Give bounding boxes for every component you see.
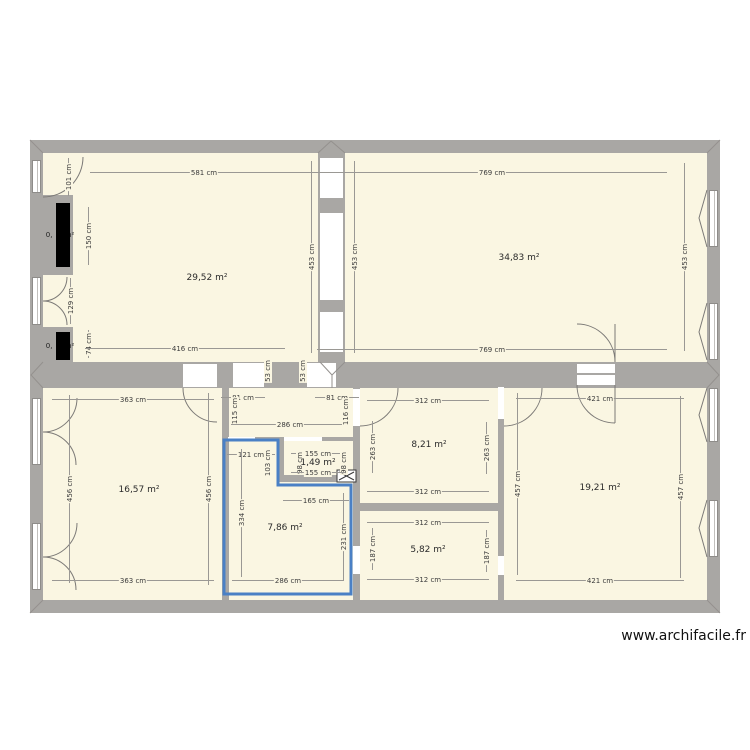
dimension-label: 263 cm bbox=[369, 433, 377, 461]
dimension-label: 416 cm bbox=[171, 345, 199, 353]
dimension-label: 312 cm bbox=[414, 576, 442, 584]
room-area-label[interactable]: 5,82 m² bbox=[410, 545, 445, 555]
dimension: 150 cm bbox=[88, 207, 89, 265]
room-area-label[interactable]: 1,49 m² bbox=[300, 458, 335, 468]
floor-plan-canvas: 581 cm101 cm150 cm129 cm74 cm416 cm453 c… bbox=[0, 0, 750, 750]
dimension: 231 cm bbox=[343, 493, 344, 581]
dimension-label: 155 cm bbox=[304, 469, 332, 477]
dimension: 457 cm bbox=[680, 396, 681, 578]
dimension: 453 cm bbox=[354, 161, 355, 353]
dimension: 187 cm bbox=[372, 528, 373, 570]
dimension-label: 187 cm bbox=[483, 537, 491, 565]
dimension: 421 cm bbox=[516, 580, 684, 581]
dimension-label: 129 cm bbox=[67, 287, 75, 315]
dimension-label: 457 cm bbox=[677, 473, 685, 501]
room-area-label[interactable]: 34,83 m² bbox=[498, 253, 539, 263]
dimension: 187 cm bbox=[486, 530, 487, 572]
dimension-label: 101 cm bbox=[65, 163, 73, 191]
dimension: 53 cm bbox=[302, 361, 303, 381]
conduit-box bbox=[56, 203, 70, 267]
room-area-label[interactable]: 19,21 m² bbox=[579, 483, 620, 493]
dimension: 101 cm bbox=[68, 158, 69, 196]
dimension: 363 cm bbox=[52, 399, 214, 400]
dimension: 165 cm bbox=[283, 500, 349, 501]
dimension: 74 cm bbox=[88, 330, 89, 358]
dimension-label: 53 cm bbox=[264, 359, 272, 383]
dimension: 769 cm bbox=[317, 172, 667, 173]
dimension-label: 453 cm bbox=[681, 243, 689, 271]
dimension-label: 453 cm bbox=[308, 243, 316, 271]
dimension: 263 cm bbox=[372, 421, 373, 473]
dimension: 81 cm bbox=[315, 397, 359, 398]
dimension: 363 cm bbox=[52, 580, 214, 581]
dimension-label: 581 cm bbox=[190, 169, 218, 177]
dimension-label: 286 cm bbox=[274, 577, 302, 585]
dimension-label: 769 cm bbox=[478, 346, 506, 354]
dimension: 416 cm bbox=[85, 348, 285, 349]
dimension-label: 312 cm bbox=[414, 519, 442, 527]
room-area-label[interactable]: 16,57 m² bbox=[118, 485, 159, 495]
dimension-label: 456 cm bbox=[66, 475, 74, 503]
dimension-label: 453 cm bbox=[351, 243, 359, 271]
dimension: 334 cm bbox=[241, 449, 242, 577]
dimension-label: 150 cm bbox=[85, 222, 93, 250]
dimension: 81 cm bbox=[221, 397, 265, 398]
dimension-label: 457 cm bbox=[514, 470, 522, 498]
dimension: 155 cm bbox=[291, 472, 345, 473]
dimension-label: 263 cm bbox=[483, 434, 491, 462]
dimension-label: 421 cm bbox=[586, 395, 614, 403]
watermark: www.archifacile.fr bbox=[621, 628, 746, 644]
dimension: 98 cm bbox=[343, 453, 344, 473]
dimension: 53 cm bbox=[267, 361, 268, 381]
dimension: 312 cm bbox=[367, 491, 489, 492]
dimension-label: 456 cm bbox=[205, 475, 213, 503]
dimension-label: 334 cm bbox=[238, 499, 246, 527]
dimension: 769 cm bbox=[317, 349, 667, 350]
dimension: 312 cm bbox=[367, 522, 489, 523]
room-area-label[interactable]: 8,21 m² bbox=[411, 440, 446, 450]
dimension-label: 769 cm bbox=[478, 169, 506, 177]
dimension-label: 103 cm bbox=[264, 449, 272, 477]
dimension-label: 363 cm bbox=[119, 577, 147, 585]
dimension-label: 115 cm bbox=[231, 397, 239, 425]
dimension: 286 cm bbox=[231, 424, 349, 425]
dimension: 312 cm bbox=[367, 579, 489, 580]
room-area-label[interactable]: 29,52 m² bbox=[186, 273, 227, 283]
dimension-label: 165 cm bbox=[302, 497, 330, 505]
dimension: 115 cm bbox=[234, 397, 235, 425]
dimension-label: 187 cm bbox=[369, 535, 377, 563]
dimension: 421 cm bbox=[516, 398, 684, 399]
dimension: 453 cm bbox=[684, 163, 685, 351]
dimension: 312 cm bbox=[367, 400, 489, 401]
dimension: 456 cm bbox=[208, 393, 209, 585]
dimension: 581 cm bbox=[90, 172, 318, 173]
dimension: 263 cm bbox=[486, 422, 487, 474]
dimension-label: 312 cm bbox=[414, 488, 442, 496]
dimension: 129 cm bbox=[70, 278, 71, 324]
dimension-label: 421 cm bbox=[586, 577, 614, 585]
dimension: 456 cm bbox=[69, 395, 70, 583]
conduit-box bbox=[56, 332, 70, 360]
dimension: 116 cm bbox=[345, 398, 346, 426]
dimension-label: 116 cm bbox=[342, 398, 350, 426]
dimension: 103 cm bbox=[267, 450, 268, 476]
dimension: 453 cm bbox=[311, 161, 312, 353]
dimension-label: 155 cm bbox=[304, 450, 332, 458]
dimension-label: 312 cm bbox=[414, 397, 442, 405]
dimension-label: 53 cm bbox=[299, 359, 307, 383]
dimension: 457 cm bbox=[517, 393, 518, 575]
dimension-label: 74 cm bbox=[85, 332, 93, 356]
room-area-label[interactable]: 7,86 m² bbox=[267, 523, 302, 533]
dimension: 286 cm bbox=[232, 580, 344, 581]
dimension-label: 363 cm bbox=[119, 396, 147, 404]
dimension-label: 231 cm bbox=[340, 523, 348, 551]
dimension-label: 286 cm bbox=[276, 421, 304, 429]
